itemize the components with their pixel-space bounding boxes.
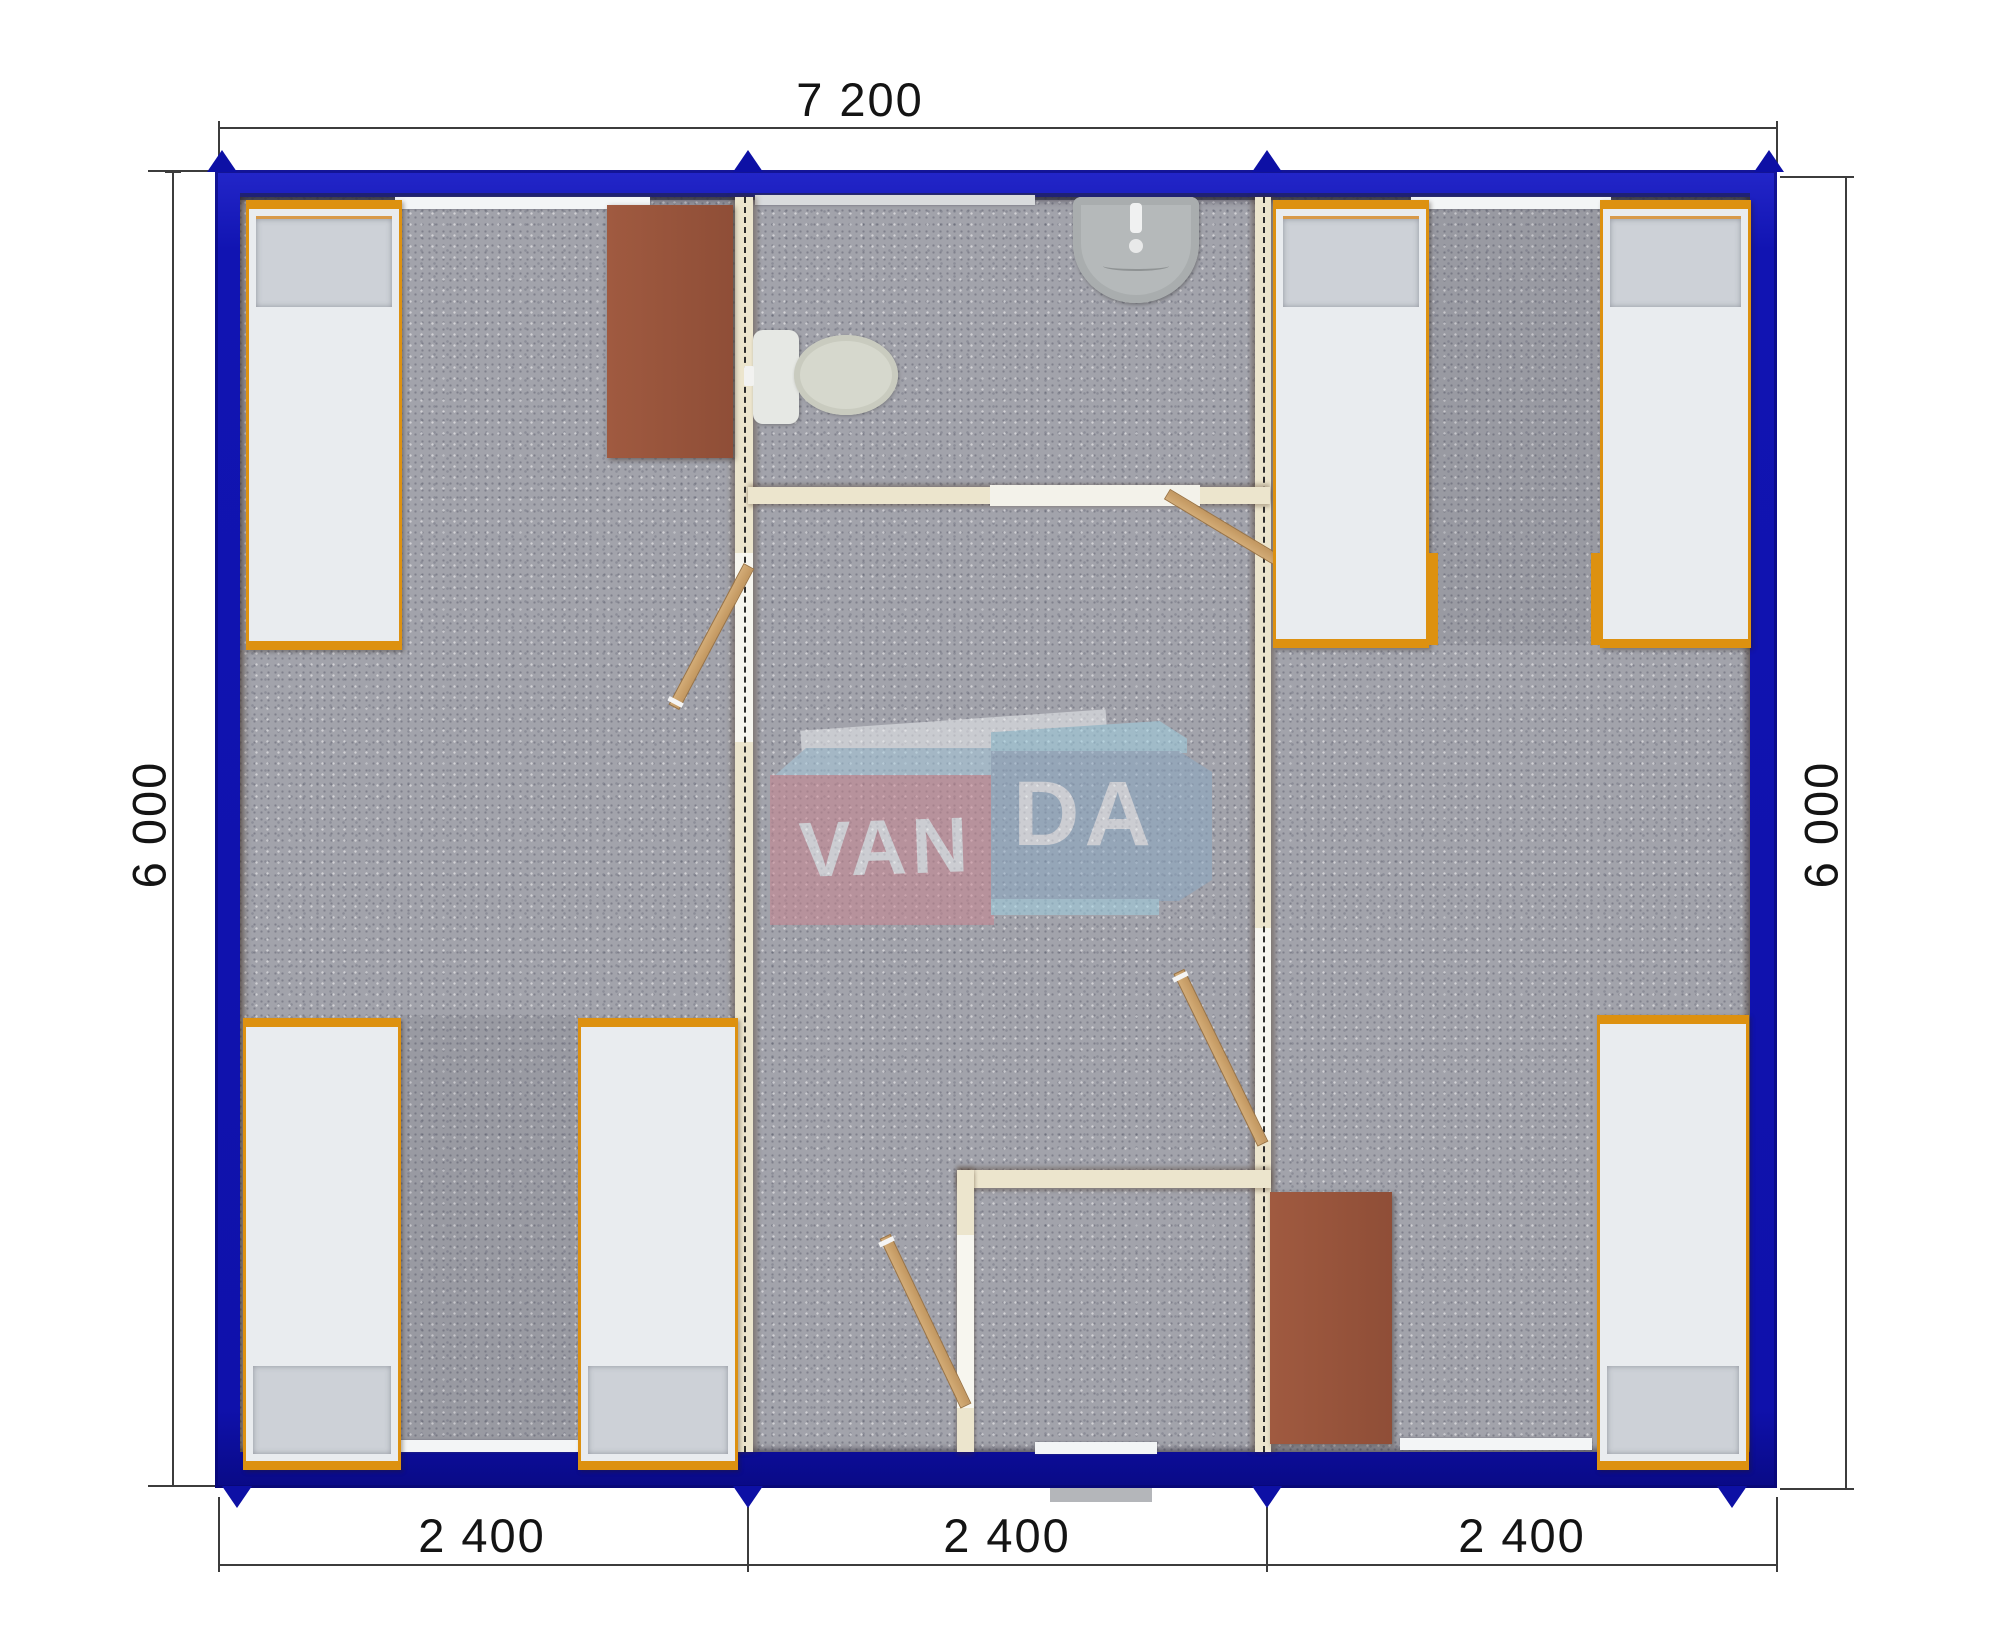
bed-post	[1591, 553, 1601, 645]
pillow	[256, 216, 392, 307]
bed	[1273, 200, 1429, 648]
module-arrow-icon	[207, 150, 237, 172]
dimension-label-module-2: 2 400	[907, 1508, 1107, 1563]
wardrobe	[607, 205, 733, 458]
dimension-line-top	[218, 127, 1778, 129]
window-top-right	[1411, 197, 1611, 209]
extension-line	[1780, 1488, 1850, 1490]
dimension-label-total-width: 7 200	[760, 72, 960, 127]
module-arrow-icon	[733, 1486, 763, 1508]
door-handle-icon	[878, 1236, 895, 1247]
vestibule-wall-horizontal	[957, 1170, 1271, 1188]
dimension-label-module-3: 2 400	[1422, 1508, 1622, 1563]
extension-line	[148, 1485, 216, 1487]
window-top-middle	[755, 195, 1035, 205]
module-arrow-icon	[1252, 150, 1282, 172]
entrance-threshold-step	[1050, 1488, 1152, 1502]
partition-wall-right	[1255, 197, 1271, 1452]
extension-line	[148, 170, 216, 172]
vanda-watermark-logo: VAN DA	[765, 714, 1217, 936]
module-arrow-icon	[1717, 1486, 1747, 1508]
bed	[243, 1018, 401, 1470]
dimension-line-left	[172, 172, 174, 1486]
faucet-icon	[1130, 203, 1142, 233]
dimension-line-bottom	[218, 1564, 1778, 1566]
carpet-alley	[1428, 200, 1606, 645]
faucet-knob-icon	[1129, 239, 1143, 253]
pillow	[1610, 216, 1741, 307]
door-handle-icon	[1172, 971, 1189, 983]
dim-tick	[1838, 176, 1854, 178]
dimension-line-right	[1845, 177, 1847, 1489]
module-arrow-icon	[733, 150, 763, 172]
floor-plan-canvas: 7 200 6 000 6 000 2 400 2 400 2 400	[0, 0, 2000, 1648]
dimension-label-height-left: 6 000	[122, 725, 177, 925]
extension-line	[1776, 1497, 1778, 1564]
logo-red-box-top-face	[773, 748, 993, 777]
window-bottom-right	[1400, 1438, 1592, 1450]
pillow	[1607, 1366, 1739, 1454]
bed-post	[1428, 553, 1438, 645]
bed	[578, 1018, 738, 1470]
carpet-alley	[400, 1015, 575, 1452]
pillow	[253, 1366, 391, 1454]
extension-line	[218, 1497, 220, 1564]
extension-line	[1266, 1507, 1268, 1564]
toilet-bowl	[794, 335, 898, 415]
entrance-door-sill	[1035, 1442, 1157, 1454]
logo-text-van: VAN	[797, 799, 974, 896]
basin-edge	[1103, 261, 1169, 271]
module-arrow-icon	[1252, 1486, 1282, 1508]
module-arrow-icon	[222, 1486, 252, 1508]
pillow	[1283, 216, 1419, 307]
wardrobe	[1270, 1192, 1392, 1444]
toilet-tank	[753, 330, 799, 424]
logo-text-da: DA	[1013, 762, 1156, 867]
dimension-label-module-1: 2 400	[382, 1508, 582, 1563]
vestibule-wall-vertical	[957, 1170, 974, 1452]
pillow	[588, 1366, 728, 1454]
toilet-flush-button	[744, 366, 754, 386]
dimension-label-height-right: 6 000	[1794, 725, 1849, 925]
window-bottom-left	[380, 1440, 578, 1452]
module-arrow-icon	[1754, 150, 1784, 172]
logo-blue-container-bottom-strip	[991, 899, 1159, 915]
bed	[1597, 1015, 1749, 1470]
extension-line	[747, 1507, 749, 1564]
dim-tick	[165, 171, 181, 173]
partition-centerline	[1263, 197, 1265, 1452]
bed	[1600, 200, 1751, 648]
bed	[246, 200, 402, 650]
